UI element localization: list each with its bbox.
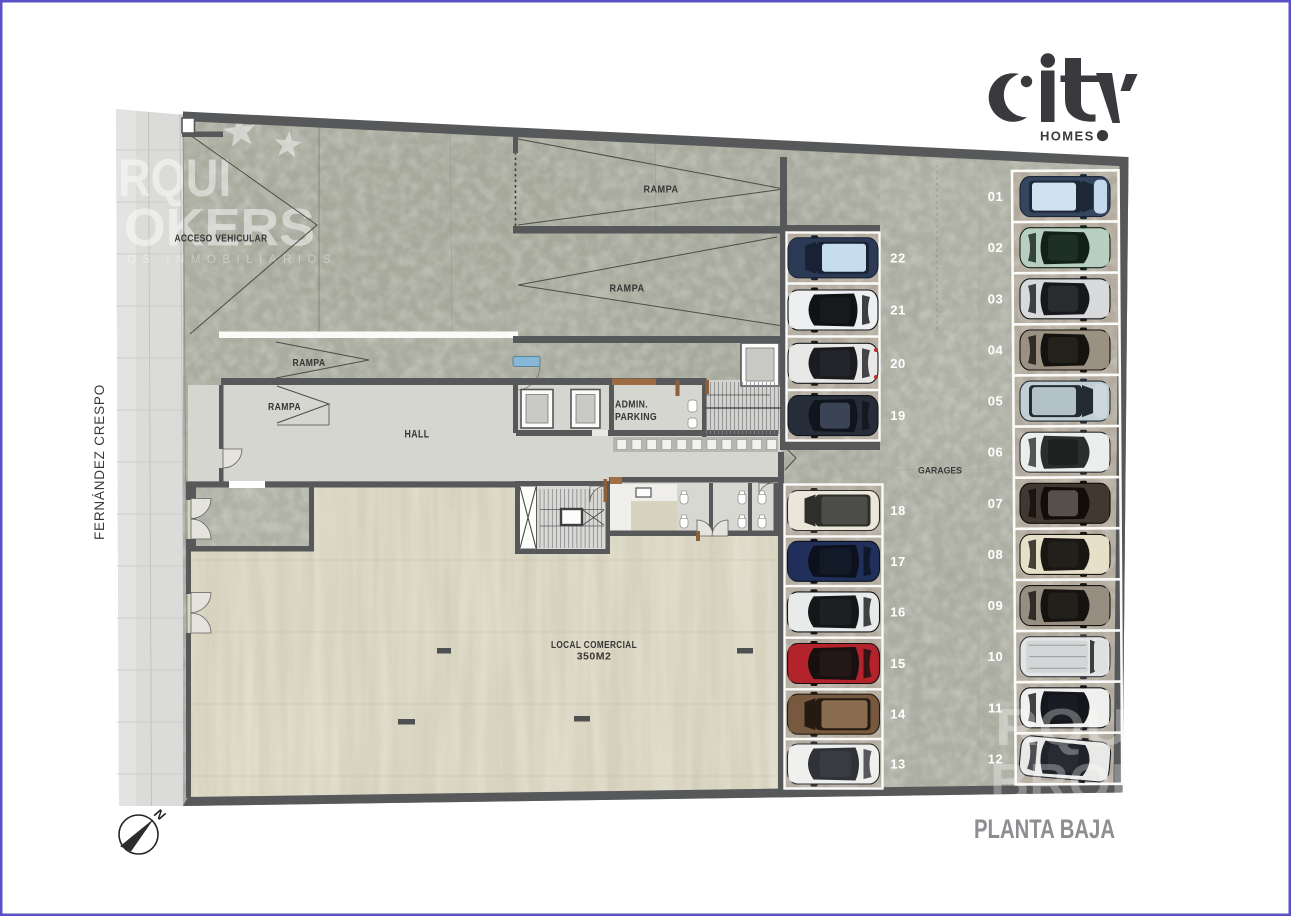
svg-text:RAMPA: RAMPA [644,184,679,196]
svg-text:350M2: 350M2 [577,651,612,663]
svg-text:01: 01 [988,189,1003,204]
svg-text:RAMPA: RAMPA [293,357,326,369]
svg-text:HALL: HALL [405,429,430,441]
svg-text:ADMIN.: ADMIN. [615,399,648,411]
svg-text:FERNÁNDEZ CRESPO: FERNÁNDEZ CRESPO [92,384,107,540]
svg-text:ACCESO VEHICULAR: ACCESO VEHICULAR [175,233,268,245]
svg-text:HOMES: HOMES [1040,129,1095,144]
svg-text:21: 21 [890,303,905,318]
svg-text:07: 07 [988,496,1003,511]
svg-text:GARAGES: GARAGES [918,466,962,477]
svg-text:10: 10 [988,649,1003,664]
svg-text:PARKING: PARKING [615,411,657,423]
svg-text:22: 22 [890,250,905,265]
svg-text:02: 02 [988,240,1003,255]
svg-text:18: 18 [890,503,905,518]
svg-text:RAMPA: RAMPA [268,401,301,413]
svg-text:19: 19 [890,408,905,423]
svg-text:14: 14 [890,707,906,722]
svg-text:08: 08 [988,547,1003,562]
svg-text:13: 13 [890,757,905,772]
svg-text:04: 04 [988,342,1004,357]
svg-text:15: 15 [890,656,905,671]
svg-text:OS INMOBILIARIOS: OS INMOBILIARIOS [127,254,337,266]
svg-text:20: 20 [890,356,905,371]
svg-text:17: 17 [890,554,905,569]
svg-text:05: 05 [988,394,1003,409]
svg-text:PLANTA BAJA: PLANTA BAJA [974,814,1115,844]
svg-text:06: 06 [988,445,1003,460]
svg-text:03: 03 [988,291,1003,306]
svg-text:16: 16 [890,604,905,619]
svg-text:LOCAL COMERCIAL: LOCAL COMERCIAL [551,639,637,651]
svg-text:OKERS: OKERS [124,199,315,258]
svg-text:09: 09 [988,598,1003,613]
svg-text:RAMPA: RAMPA [610,283,645,295]
svg-text:RQUI: RQUI [995,699,1145,757]
